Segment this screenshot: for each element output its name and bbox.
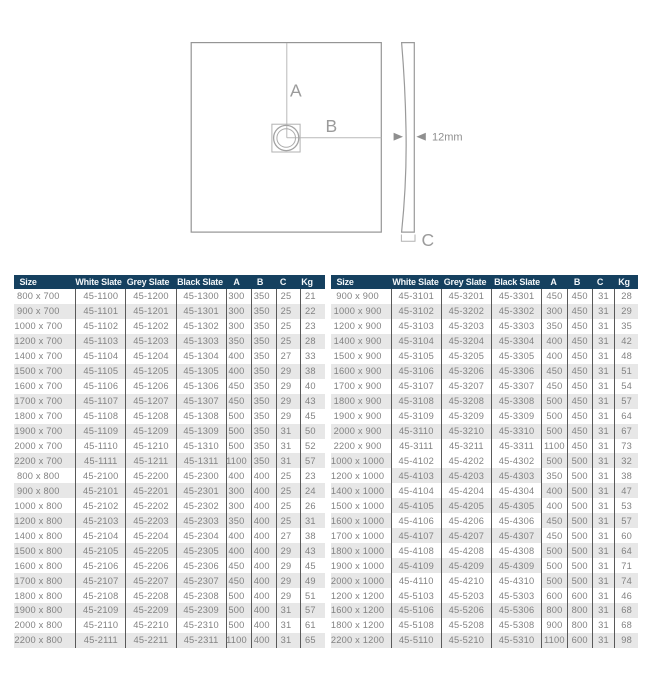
- svg-text:C: C: [422, 230, 435, 250]
- svg-text:B: B: [326, 116, 338, 136]
- svg-text:A: A: [290, 81, 302, 101]
- svg-text:12mm: 12mm: [432, 132, 463, 144]
